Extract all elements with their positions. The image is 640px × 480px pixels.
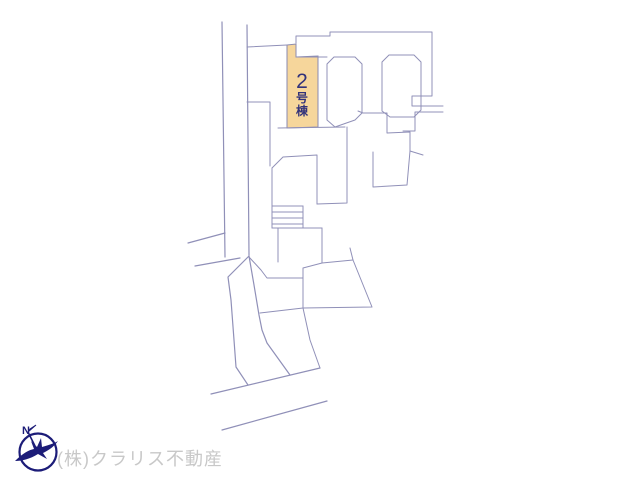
boundary-line xyxy=(303,308,320,368)
parcel-outline xyxy=(272,155,317,204)
boundary-line xyxy=(317,127,347,204)
diagonal-road-lower-edge xyxy=(222,401,327,430)
parcel-outline xyxy=(303,260,372,308)
parcel-boundary-lines xyxy=(247,32,443,368)
boundary-line xyxy=(247,102,270,166)
parcel-outline xyxy=(327,57,362,127)
boundary-line xyxy=(350,248,353,260)
boundary-line xyxy=(303,260,353,308)
boundary-line xyxy=(260,308,303,313)
boundary-line xyxy=(249,257,303,278)
compass-north-label: N xyxy=(22,425,30,437)
road-edge-right xyxy=(247,25,249,255)
road-edge-left xyxy=(222,22,225,257)
boundary-line xyxy=(358,111,423,155)
parcel-outline xyxy=(382,55,421,117)
company-watermark: (株)クラリス不動産 xyxy=(57,445,223,471)
boundary-line xyxy=(247,45,287,47)
boundary-line xyxy=(373,151,410,187)
road-stub-upper xyxy=(188,233,225,243)
site-plan-svg: N xyxy=(0,0,640,480)
compass-icon: N xyxy=(15,425,58,471)
boundary-line xyxy=(403,112,443,131)
narrow-road-right-edge xyxy=(249,256,290,375)
site-plan-canvas: N 2 号 棟 (株)クラリス不動産 xyxy=(0,0,640,480)
road-stub-lower xyxy=(195,258,240,266)
compass-bird-shape xyxy=(15,438,58,461)
narrow-road-left-edge xyxy=(228,256,249,385)
diagonal-road-upper-edge xyxy=(211,368,320,394)
